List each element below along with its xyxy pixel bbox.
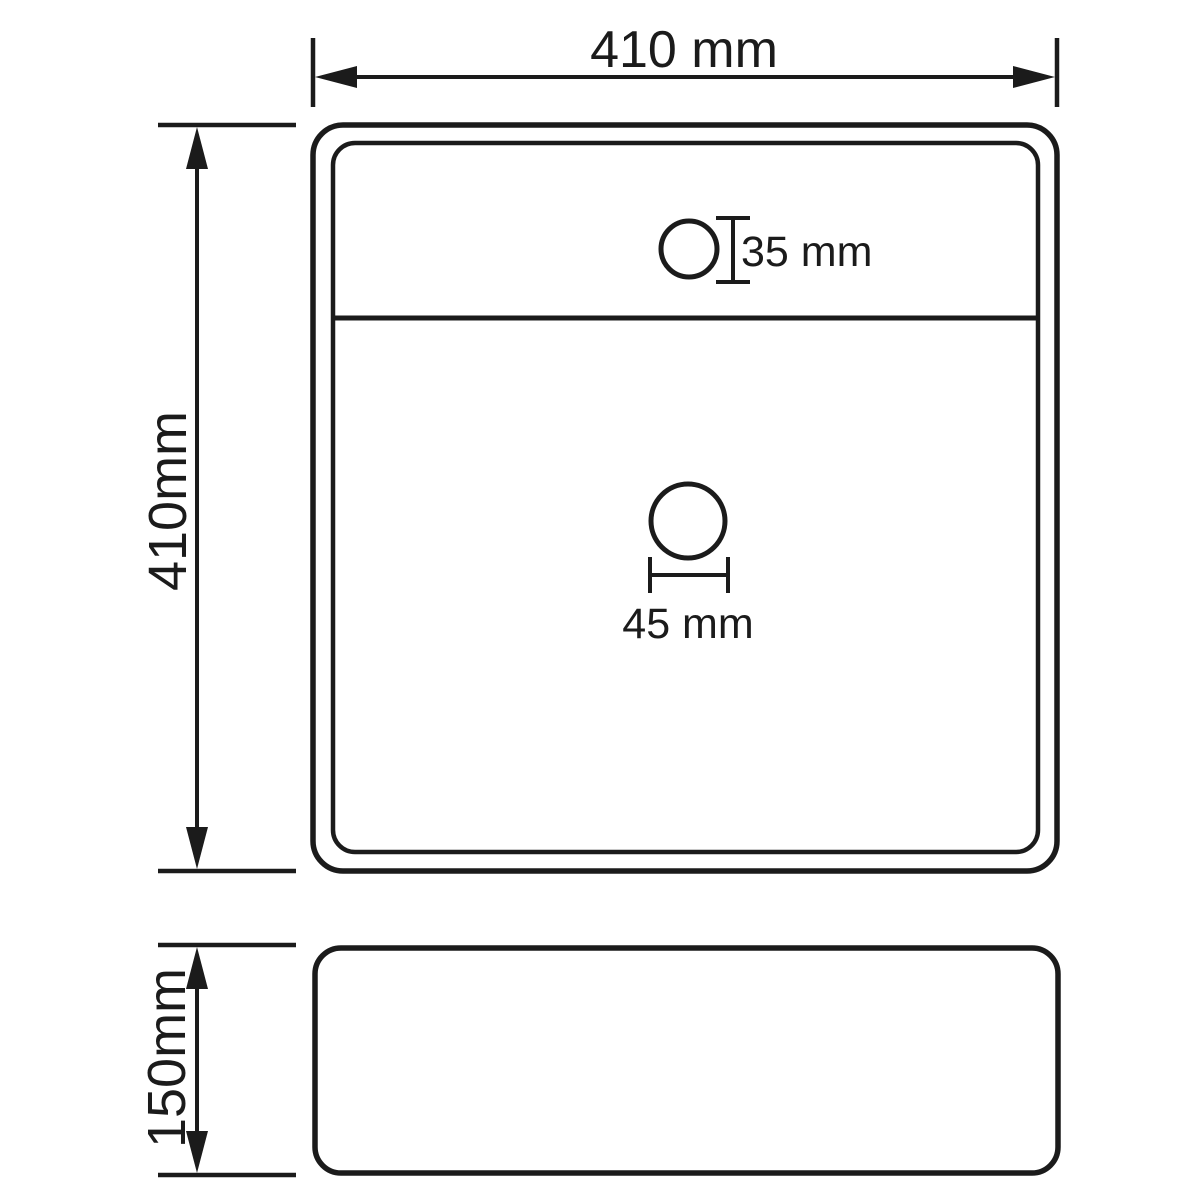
side-height-dimension: 150mm [137,945,296,1175]
left-height-label: 410mm [138,411,198,591]
technical-drawing: 410 mm 35 mm 45 mm [0,0,1200,1200]
top-width-label: 410 mm [590,21,778,79]
washbasin-dimension-diagram: 410 mm 35 mm 45 mm [0,0,1200,1200]
arrowhead-left-icon [315,66,357,88]
arrowhead-down-icon [186,827,208,869]
side-height-label: 150mm [137,968,197,1148]
top-width-dimension: 410 mm [313,21,1057,107]
drain-hole-circle [651,484,725,558]
side-view-outline [315,948,1058,1173]
drain-hole-dimension: 45 mm [622,557,753,648]
plan-view: 35 mm 45 mm [313,125,1057,871]
arrowhead-right-icon [1013,66,1055,88]
drain-hole-label: 45 mm [622,600,753,648]
faucet-hole-label: 35 mm [741,228,872,276]
left-height-dimension: 410mm [138,125,296,871]
plan-view-outer-outline [313,125,1057,871]
faucet-hole-dimension: 35 mm [716,218,872,282]
side-view [315,948,1058,1173]
faucet-hole-circle [661,221,717,277]
plan-view-inner-outline [333,143,1038,852]
arrowhead-up-icon [186,127,208,169]
